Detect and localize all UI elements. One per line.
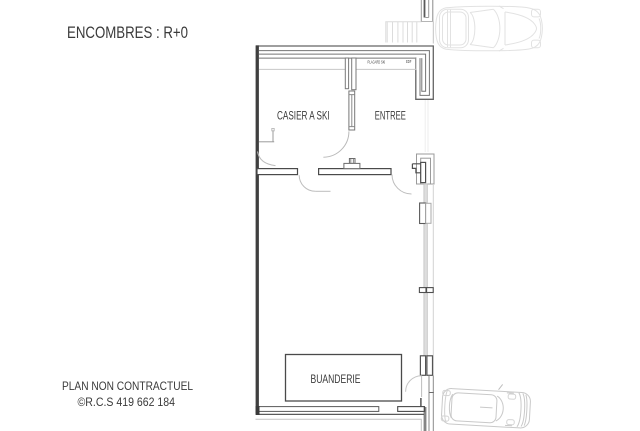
svg-text:CASIER A SKI: CASIER A SKI — [277, 110, 330, 122]
svg-text:ENCOMBRES : R+0: ENCOMBRES : R+0 — [67, 24, 188, 42]
svg-text:ENTREE: ENTREE — [375, 110, 406, 122]
svg-text:BUANDERIE: BUANDERIE — [311, 374, 361, 386]
svg-text:PLACARD SKI: PLACARD SKI — [368, 59, 386, 64]
svg-text:EDF: EDF — [406, 59, 412, 64]
svg-text:PLAN NON CONTRACTUEL: PLAN NON CONTRACTUEL — [62, 379, 193, 393]
svg-text:©R.C.S 419 662 184: ©R.C.S 419 662 184 — [78, 395, 176, 409]
